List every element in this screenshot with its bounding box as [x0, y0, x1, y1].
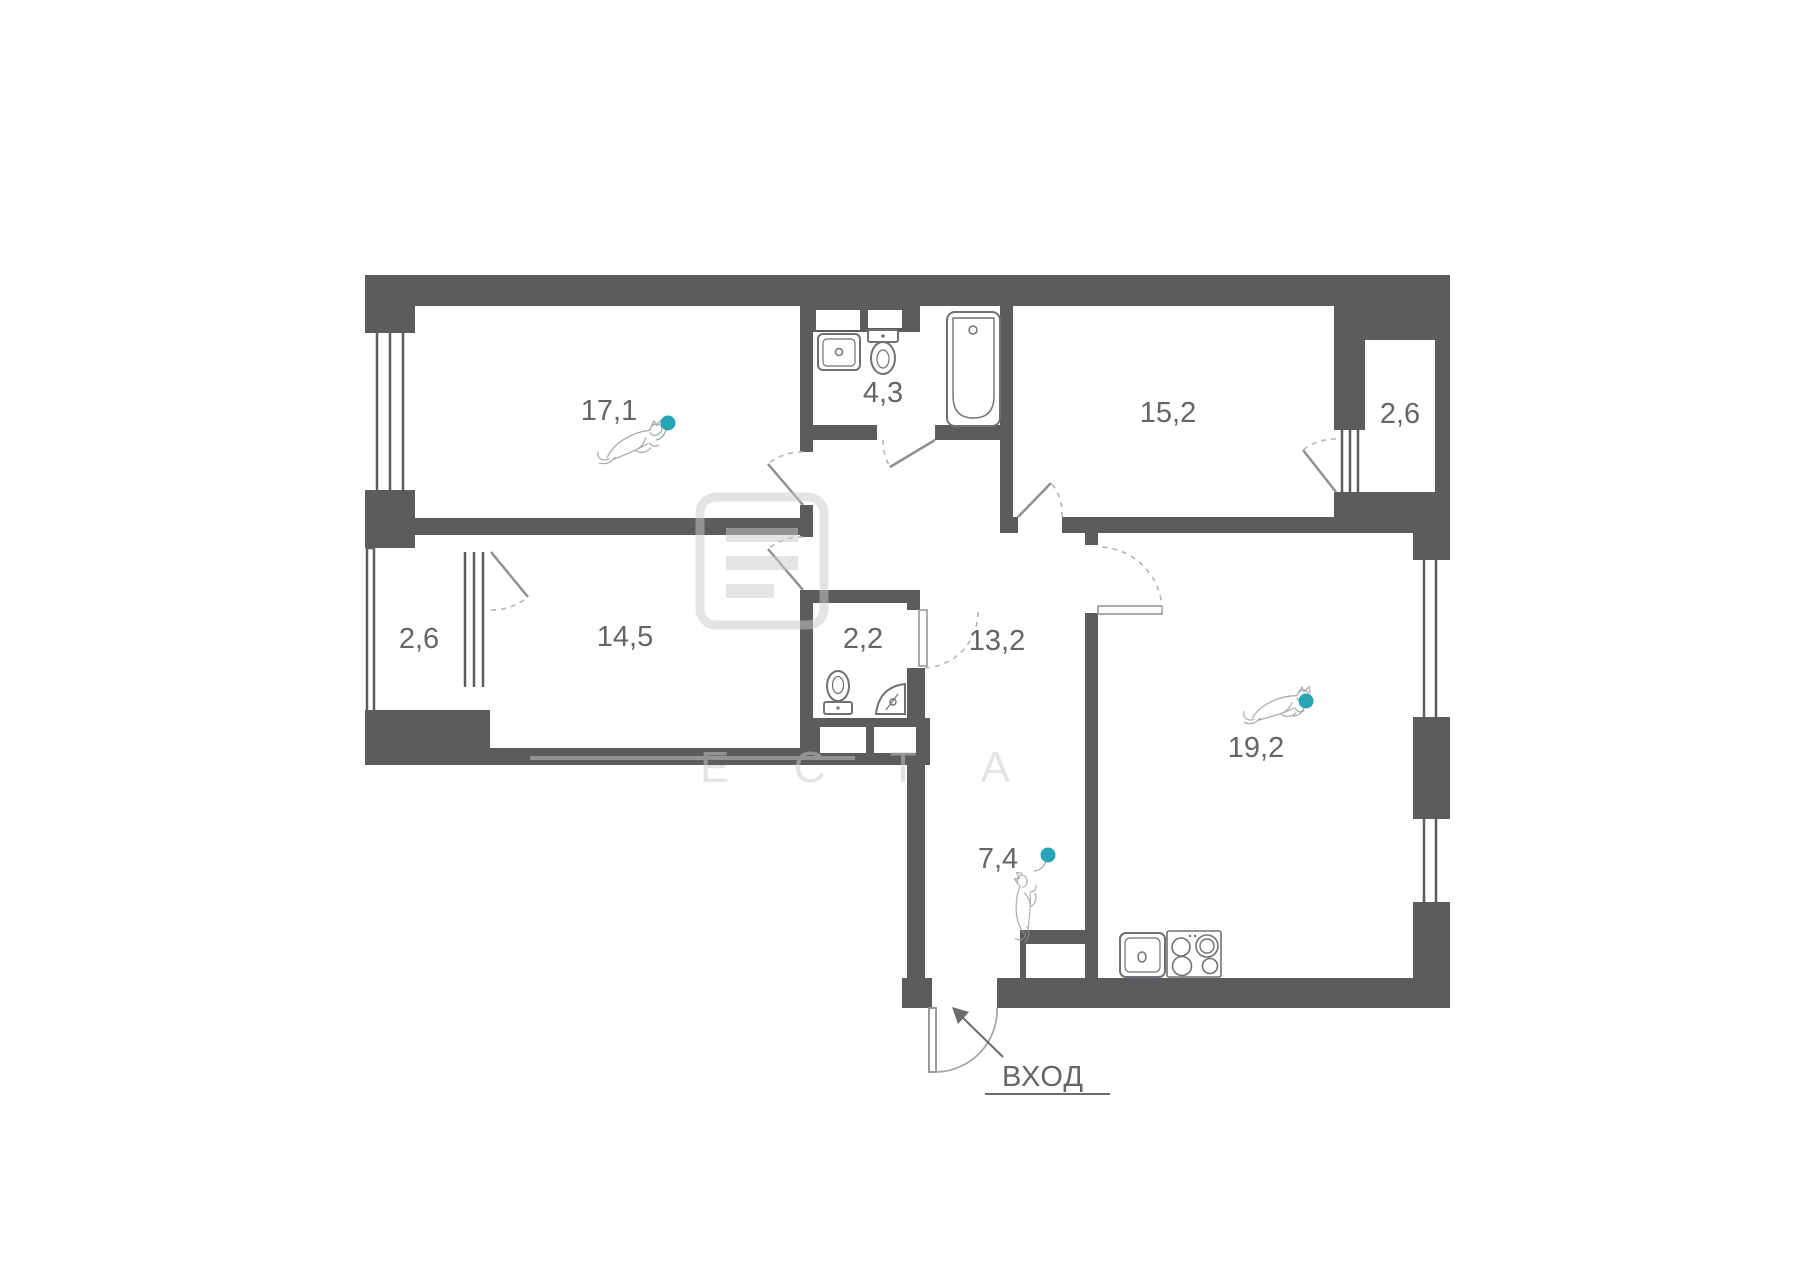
floor-plan-page: 17,1 4,3 15,2 2,6 14,5 2,6 2,2 13,2 19,2… [0, 0, 1811, 1280]
window-bedroom-balcony [1334, 430, 1365, 492]
area-label-bathroom: 4,3 [863, 377, 903, 409]
toilet-bathroom [868, 330, 898, 374]
area-label-hallway: 13,2 [969, 625, 1025, 657]
window-kitchen-lower [1413, 819, 1450, 902]
area-label-balcony-left: 2,6 [399, 623, 439, 655]
area-label-wc: 2,2 [843, 623, 883, 655]
door-bedroom [1018, 483, 1062, 517]
entrance-label: ВХОД [1002, 1061, 1084, 1093]
balcony-left-glazing [367, 548, 374, 710]
bathtub [947, 312, 1000, 426]
marker-dot-living [661, 416, 676, 431]
window-kitchen-upper [1413, 560, 1450, 717]
stove [1167, 931, 1221, 977]
floor-plan-svg: 17,1 4,3 15,2 2,6 14,5 2,6 2,2 13,2 19,2… [0, 0, 1811, 1280]
wc-fixtures [824, 671, 905, 714]
entrance-callout: ВХОД [952, 1007, 1110, 1094]
door-kitchen-living [1098, 547, 1162, 614]
corner-sink-wc [876, 684, 905, 714]
area-label-balcony-top: 2,6 [1380, 398, 1420, 430]
door-balcony-top [1303, 439, 1336, 492]
marker-dot-entry [1041, 848, 1056, 863]
sink-bathroom [818, 334, 860, 370]
area-label-bedroom-2: 14,5 [597, 621, 653, 653]
door-balcony-left [491, 552, 528, 610]
watermark-text: Е С Т А [700, 743, 1036, 792]
kitchen-sink [1120, 933, 1165, 977]
toilet-wc [824, 671, 852, 714]
area-label-entry-hall: 7,4 [978, 843, 1018, 875]
kitchen-fixtures [1120, 931, 1221, 977]
area-label-bedroom: 15,2 [1140, 397, 1196, 429]
window-living-room [365, 333, 415, 490]
area-label-living-room: 17,1 [581, 395, 637, 427]
area-label-kitchen: 19,2 [1228, 732, 1284, 764]
window-bedroom2-balcony [457, 552, 490, 687]
door-bathroom [883, 440, 935, 467]
walls [365, 275, 1450, 1008]
marker-dot-kitchen [1299, 694, 1314, 709]
